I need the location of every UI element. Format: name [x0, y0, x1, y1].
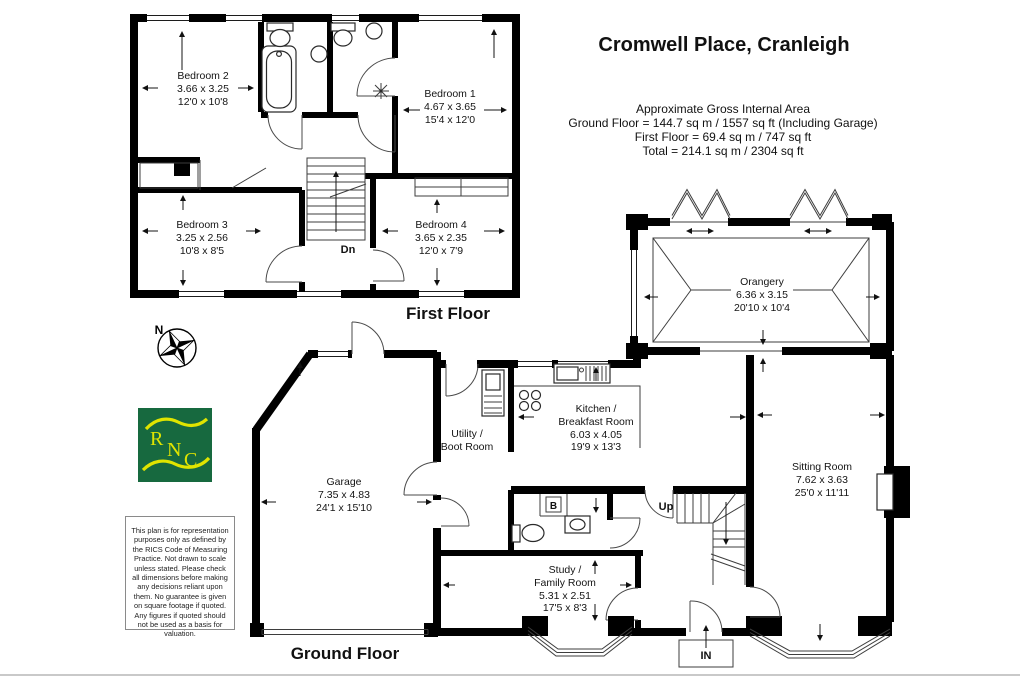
utility-sink-unit: [482, 370, 504, 416]
room-label-kitchen: Kitchen / Breakfast Room 6.03 x 4.05 19'…: [558, 403, 633, 454]
room-label-bedroom2: Bedroom 2 3.66 x 3.25 12'0 x 10'8: [177, 70, 229, 108]
area-summary-total: Total = 214.1 sq m / 2304 sq ft: [568, 144, 877, 158]
cloakroom-wc: B: [433, 494, 643, 553]
logo-letter-n: N: [167, 439, 181, 461]
wc-toilet: [522, 525, 544, 542]
ground-floor-stairs: [677, 493, 745, 585]
garage-door: [262, 630, 428, 635]
sitting-room: [746, 355, 910, 658]
first-floor-caption: First Floor: [406, 304, 490, 324]
room-label-utility: Utility / Boot Room: [441, 428, 494, 454]
area-summary-first: First Floor = 69.4 sq m / 747 sq ft: [568, 130, 877, 144]
disclaimer-box: This plan is for representation purposes…: [125, 516, 235, 630]
boiler-label: B: [550, 501, 557, 512]
kitchen-sink: [554, 364, 610, 383]
wc-toilet-cistern: [512, 525, 520, 542]
hob-icon: [520, 391, 541, 411]
room-label-study: Study / Family Room 5.31 x 2.51 17'5 x 8…: [534, 564, 596, 615]
compass-rose: N: [152, 323, 202, 373]
room-label-sitting-room: Sitting Room 7.62 x 3.63 25'0 x 11'11: [792, 461, 852, 499]
shower-head-icon: [373, 83, 389, 99]
entrance-in-label: IN: [701, 650, 712, 662]
logo-letter-r: R: [150, 428, 164, 450]
room-label-bedroom4: Bedroom 4 3.65 x 2.35 12'0 x 7'9: [415, 219, 467, 257]
room-label-garage: Garage 7.35 x 4.83 24'1 x 15'10: [316, 476, 372, 514]
logo-letter-c: C: [184, 449, 197, 471]
first-floor-stairs: Dn: [307, 158, 366, 256]
stairs-dn-label: Dn: [341, 244, 356, 256]
room-label-orangery: Orangery 6.36 x 3.15 20'10 x 10'4: [731, 276, 793, 314]
area-summary-heading: Approximate Gross Internal Area: [568, 102, 877, 116]
first-floor-chimney: [174, 157, 190, 176]
ensuite-toilet: [334, 30, 352, 46]
toilet: [270, 30, 290, 47]
ensuite-basin: [366, 23, 382, 39]
floorplan-page: Dn: [0, 0, 1020, 679]
compass-north-label: N: [155, 323, 164, 337]
room-label-bedroom3: Bedroom 3 3.25 x 2.56 10'8 x 8'5: [176, 219, 228, 257]
area-summary: Approximate Gross Internal Area Ground F…: [568, 102, 877, 158]
page-title: Cromwell Place, Cranleigh: [598, 34, 849, 57]
basin: [311, 46, 327, 62]
entrance-hall: Up IN: [606, 493, 752, 667]
stairs-up-label: Up: [659, 501, 674, 513]
ground-floor-caption: Ground Floor: [291, 644, 400, 664]
area-summary-ground: Ground Floor = 144.7 sq m / 1557 sq ft (…: [568, 116, 877, 130]
bifold-doors-icon: [672, 190, 848, 220]
rnc-logo: R N C: [138, 408, 212, 482]
room-label-bedroom1: Bedroom 1 4.67 x 3.65 15'4 x 12'0: [424, 88, 476, 126]
